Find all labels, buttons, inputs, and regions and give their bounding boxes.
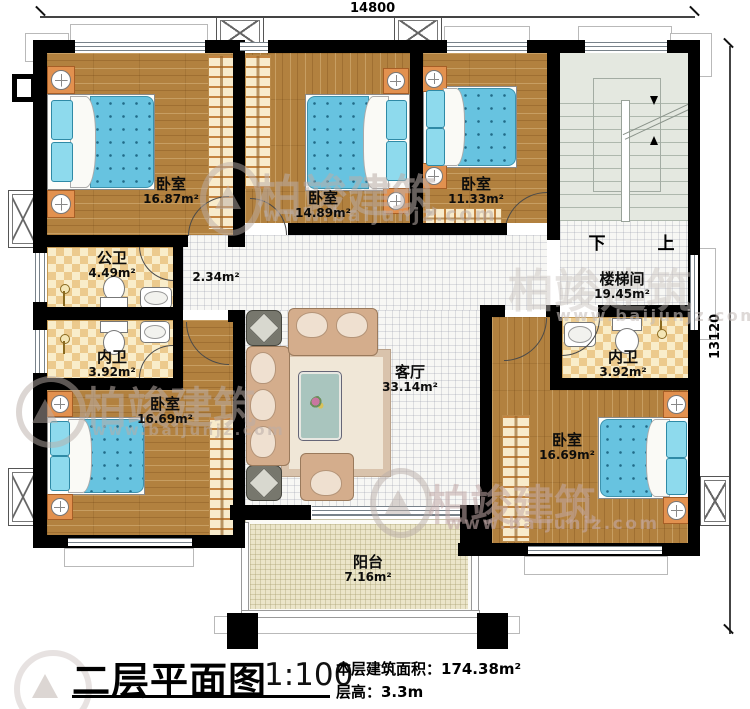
wall (547, 40, 560, 240)
watermark-logo (16, 376, 86, 448)
room-area: 14.89m² (295, 207, 351, 220)
bed-quilt (458, 88, 516, 166)
wall (598, 305, 698, 317)
window (75, 42, 205, 51)
corner-table (246, 310, 282, 346)
window-frame (64, 548, 194, 567)
wall (550, 317, 562, 378)
sofa-cushion (250, 389, 276, 421)
bed-sheet (443, 88, 465, 166)
room-area: 2.34m² (192, 271, 239, 284)
window-frame (524, 556, 668, 575)
room-name: 公卫 (88, 250, 135, 267)
room-area: 3.92m² (599, 366, 646, 379)
stat-floor-area: 本层建筑面积：174.38m² (336, 658, 521, 679)
room-name: 阳台 (344, 554, 391, 571)
room-label-bedroom-3: 卧室 11.33m² (448, 176, 504, 206)
dimension-tick (35, 6, 46, 17)
nightstand (47, 66, 75, 94)
balcony-column (477, 613, 508, 649)
pillow (50, 456, 70, 491)
bed-quilt (600, 419, 652, 497)
nightstand (421, 163, 447, 189)
wall (492, 305, 505, 317)
window (35, 253, 45, 302)
room-area: 3.92m² (88, 366, 135, 379)
pillow (386, 141, 407, 181)
balcony-column (227, 613, 258, 649)
wall (423, 223, 507, 235)
stairs-down-label: 下 (589, 229, 606, 254)
nightstand (47, 190, 75, 218)
wall (173, 238, 183, 390)
dimension-line-right (729, 46, 731, 634)
sofa-cushion (250, 426, 276, 458)
bed-sheet (70, 96, 96, 188)
sink-icon (140, 287, 172, 309)
room-name: 楼梯间 (594, 271, 650, 288)
room-label-balcony: 阳台 7.16m² (344, 554, 391, 584)
towel-ring-icon (657, 329, 667, 339)
window (35, 330, 45, 373)
room-label-living-room: 客厅 33.14m² (382, 364, 438, 394)
towel-stem (63, 341, 65, 354)
bed-quilt (84, 419, 144, 493)
nightstand (383, 68, 409, 94)
window (447, 42, 527, 51)
wall (550, 378, 698, 390)
nightstand (47, 494, 73, 520)
stairs-arrow-icon (650, 96, 658, 105)
flue-box-icon (700, 476, 730, 526)
room-name: 卧室 (137, 396, 193, 413)
window-frame (70, 24, 208, 43)
dimension-line-top (40, 16, 695, 18)
room-label-bath-inner-right: 内卫 3.92m² (599, 349, 646, 379)
watermark-logo (370, 468, 432, 538)
room-label-stairwell: 楼梯间 19.45m² (594, 271, 650, 301)
room-name: 卧室 (295, 190, 351, 207)
room-label-bath-inner-left: 内卫 3.92m² (88, 349, 135, 379)
window-frame (214, 616, 520, 634)
room-name: 客厅 (382, 364, 438, 381)
sofa-cushion (296, 312, 328, 338)
wall (460, 505, 492, 548)
wall (230, 505, 311, 520)
room-name: 卧室 (448, 176, 504, 193)
room-label-bedroom-1: 卧室 16.87m² (143, 176, 199, 206)
room-name: 卧室 (539, 432, 595, 449)
room-name: 卧室 (143, 176, 199, 193)
room-name: 内卫 (88, 349, 135, 366)
title-underline (72, 695, 330, 698)
window (240, 42, 268, 51)
room-area: 11.33m² (448, 193, 504, 206)
watermark-logo (200, 162, 262, 236)
dimension-height: 13120 (708, 310, 723, 363)
room-area: 16.69m² (137, 413, 193, 426)
towel-stem (63, 291, 65, 306)
window (585, 42, 667, 51)
wall (33, 307, 173, 320)
nightstand (383, 188, 409, 214)
wall (228, 235, 245, 247)
table-flower (310, 396, 326, 412)
room-area: 19.45m² (594, 288, 650, 301)
floor-plan-page: 柏竣建筑 www.baijunjz.com 柏竣建筑 www.baijunjz.… (0, 0, 750, 709)
wall (33, 40, 47, 253)
wall (410, 40, 423, 235)
room-area: 7.16m² (344, 571, 391, 584)
room-area: 16.69m² (539, 449, 595, 462)
sofa-cushion (310, 470, 342, 496)
pillow (426, 90, 445, 128)
sink-icon (140, 321, 170, 343)
towel-ring-icon (60, 284, 70, 294)
nightstand (663, 497, 690, 524)
window (690, 255, 698, 330)
balcony-rail (241, 610, 480, 618)
room-area: 4.49m² (88, 267, 135, 280)
stairs-divider (621, 100, 630, 222)
pillow (386, 100, 407, 140)
dimension-tick (689, 6, 700, 17)
room-area: 33.14m² (382, 381, 438, 394)
pillow (426, 128, 445, 166)
towel-ring-icon (60, 334, 70, 344)
wall (33, 235, 188, 247)
wall-protrusion-inner (17, 79, 31, 97)
sofa-cushion (336, 312, 368, 338)
nightstand (663, 391, 690, 418)
room-label-bedroom-2: 卧室 14.89m² (295, 190, 351, 220)
window (68, 538, 192, 546)
room-label-bedroom-4: 卧室 16.69m² (137, 396, 193, 426)
stat-floor-height: 层高：3.3m (336, 681, 423, 702)
hallway-area-label: 2.34m² (192, 271, 239, 284)
pillow (666, 421, 687, 458)
wall (288, 223, 410, 235)
room-label-bedroom-5: 卧室 16.69m² (539, 432, 595, 462)
dimension-width: 14800 (346, 1, 399, 16)
corner-table (246, 465, 282, 501)
stairs-up-label: 上 (658, 229, 675, 254)
room-label-bath-public: 公卫 4.49m² (88, 250, 135, 280)
bed-quilt (90, 96, 154, 188)
stairs-arrow-icon (650, 136, 658, 145)
room-area: 16.87m² (143, 193, 199, 206)
pillow (51, 100, 73, 140)
pillow (51, 142, 73, 182)
pillow (666, 458, 687, 495)
sofa-cushion (250, 352, 276, 384)
bed-quilt (307, 96, 369, 189)
wall (546, 305, 560, 317)
room-name: 内卫 (599, 349, 646, 366)
wardrobe (502, 415, 530, 542)
window (528, 546, 662, 554)
